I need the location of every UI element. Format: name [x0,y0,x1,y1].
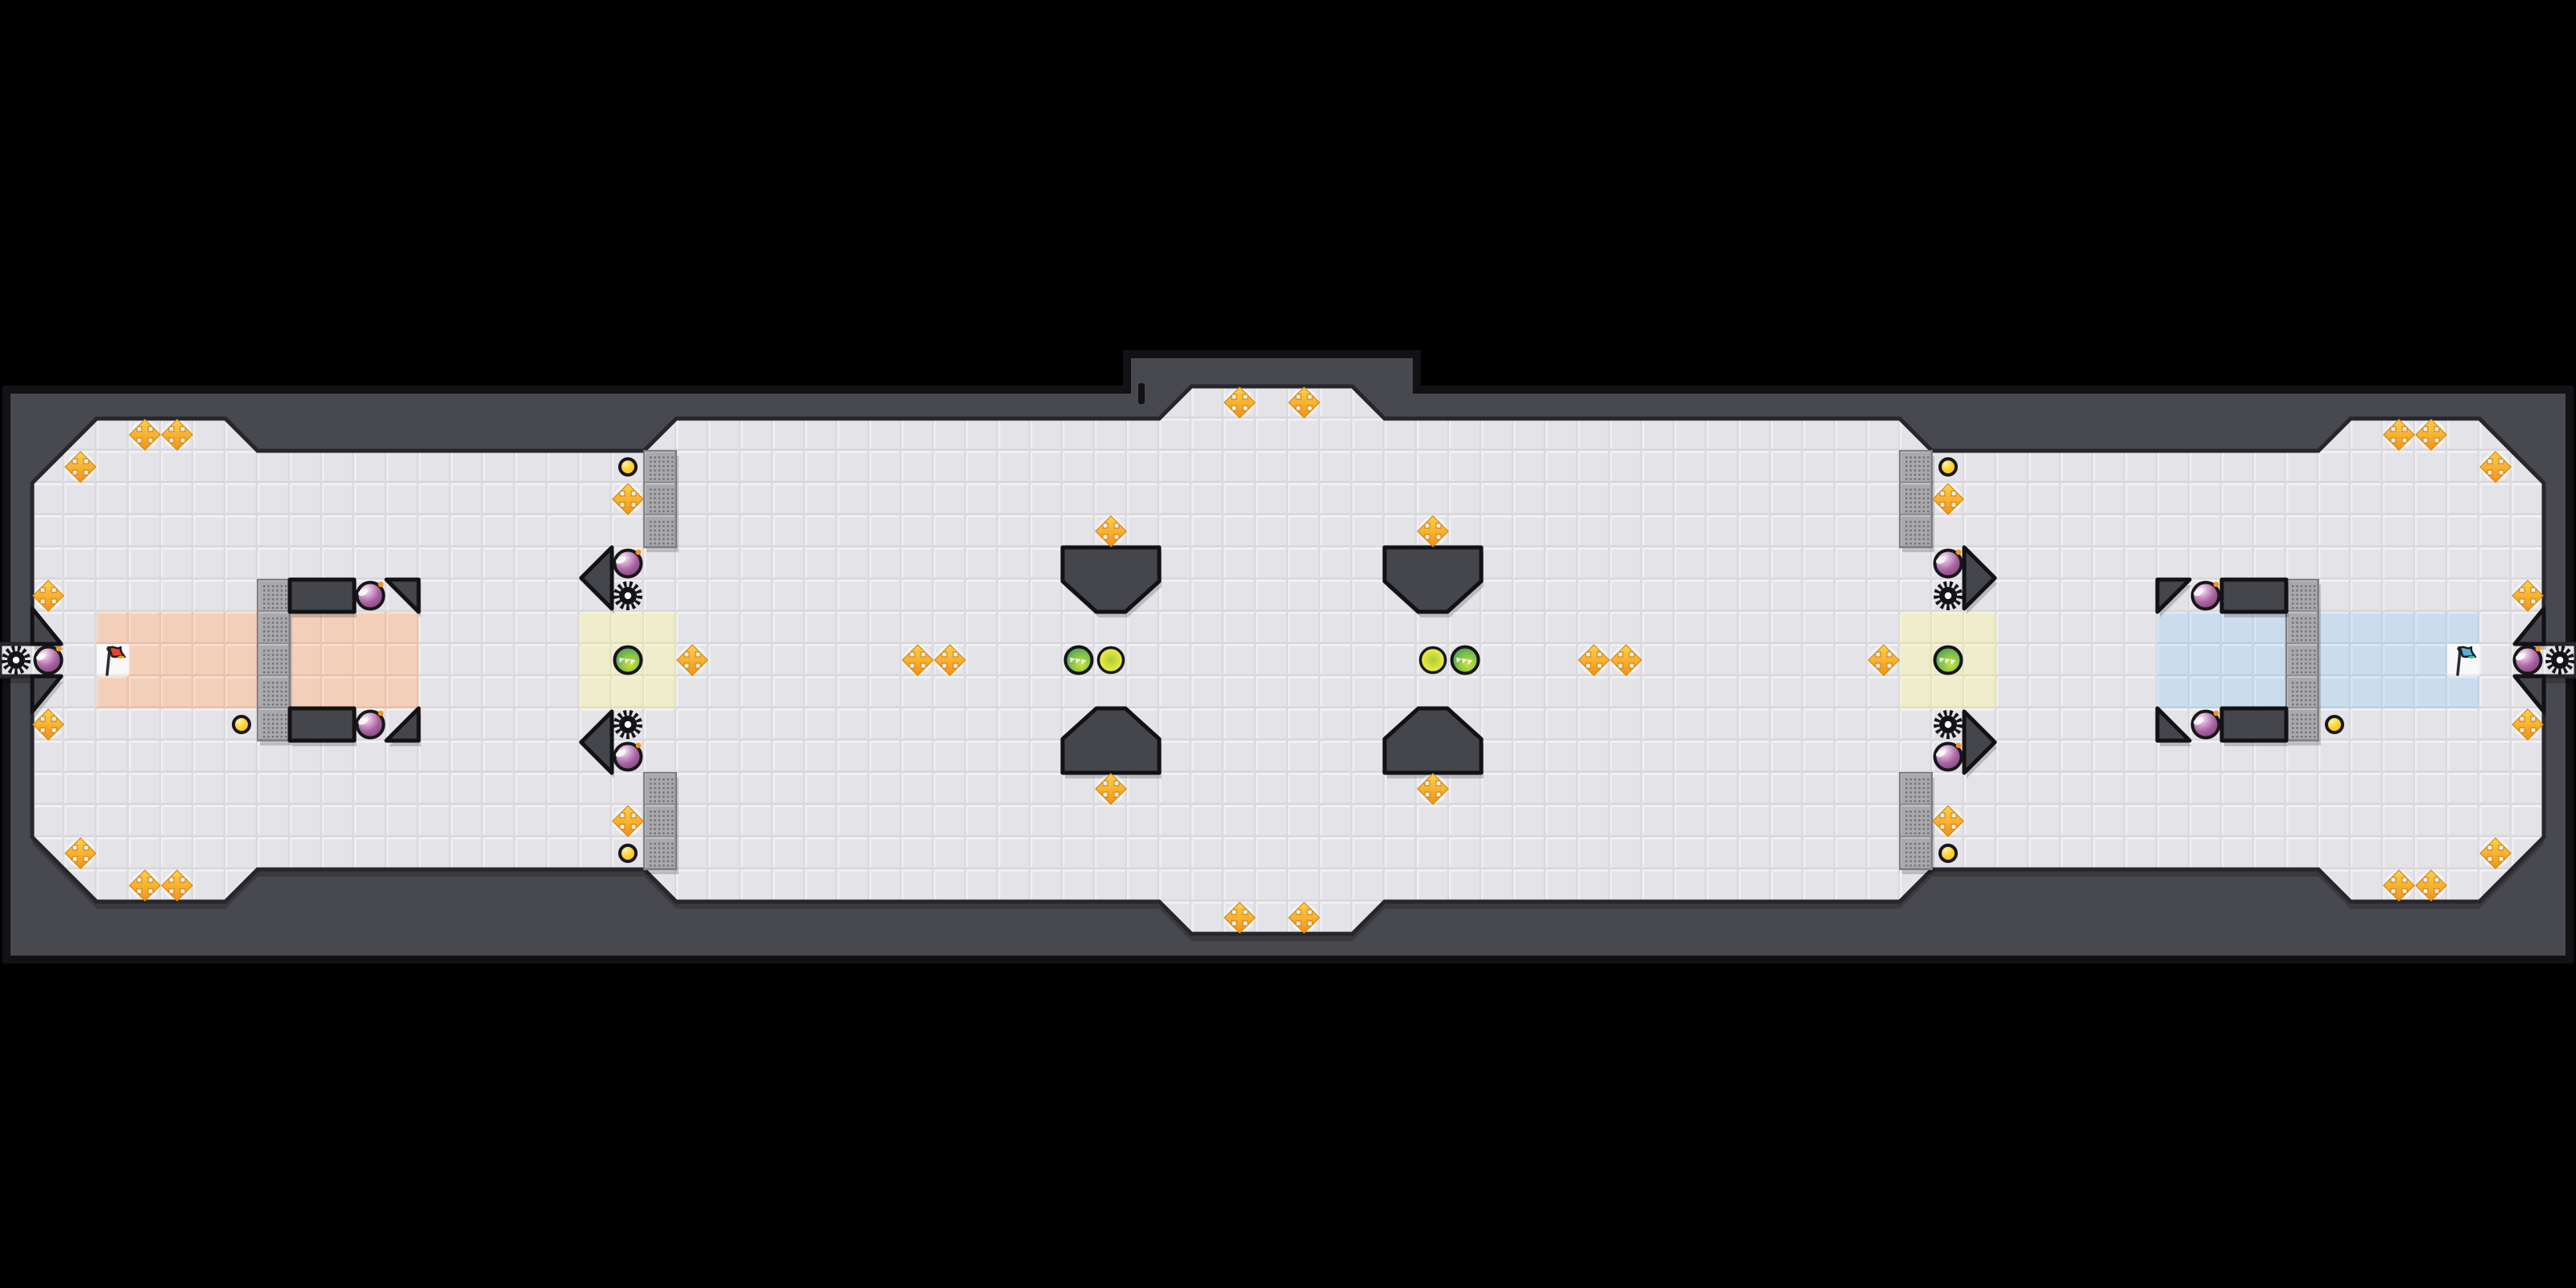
mesh-column [644,773,676,869]
coin-pickup[interactable] [620,845,636,861]
spiked-orb-item[interactable] [1066,647,1092,674]
coin-pickup[interactable] [2326,716,2343,733]
base-block [2222,580,2286,612]
bomb-item[interactable] [614,743,641,770]
spiked-orb-item[interactable] [1935,647,1962,674]
base-block [290,580,354,612]
mesh-column [2286,580,2318,741]
coin-pickup[interactable] [233,716,250,733]
coin-pickup[interactable] [1940,459,1956,475]
bomb-item[interactable] [35,646,61,674]
game-viewport[interactable] [0,0,2576,1288]
bomb-item[interactable] [2192,582,2219,609]
bomb-item[interactable] [1934,550,1961,577]
mesh-column [1900,773,1932,869]
coin-pickup[interactable] [620,459,636,475]
bomb-item[interactable] [2192,711,2219,738]
spiked-orb-item[interactable] [615,647,642,674]
wall-notch [1138,383,1145,404]
mesh-column [258,580,290,741]
mesh-column [644,451,676,547]
mesh-column [1900,451,1932,547]
map-canvas[interactable] [0,0,2576,1288]
bomb-item[interactable] [357,582,383,609]
glow-orb-item[interactable] [1099,648,1124,673]
glow-orb-item[interactable] [1421,648,1446,673]
bomb-item[interactable] [614,550,641,577]
base-block [2222,708,2286,741]
coin-pickup[interactable] [1940,845,1956,861]
bomb-item[interactable] [357,711,383,738]
base-block [290,708,354,741]
bomb-item[interactable] [2514,646,2541,674]
spiked-orb-item[interactable] [1452,647,1479,674]
bomb-item[interactable] [1934,743,1961,770]
